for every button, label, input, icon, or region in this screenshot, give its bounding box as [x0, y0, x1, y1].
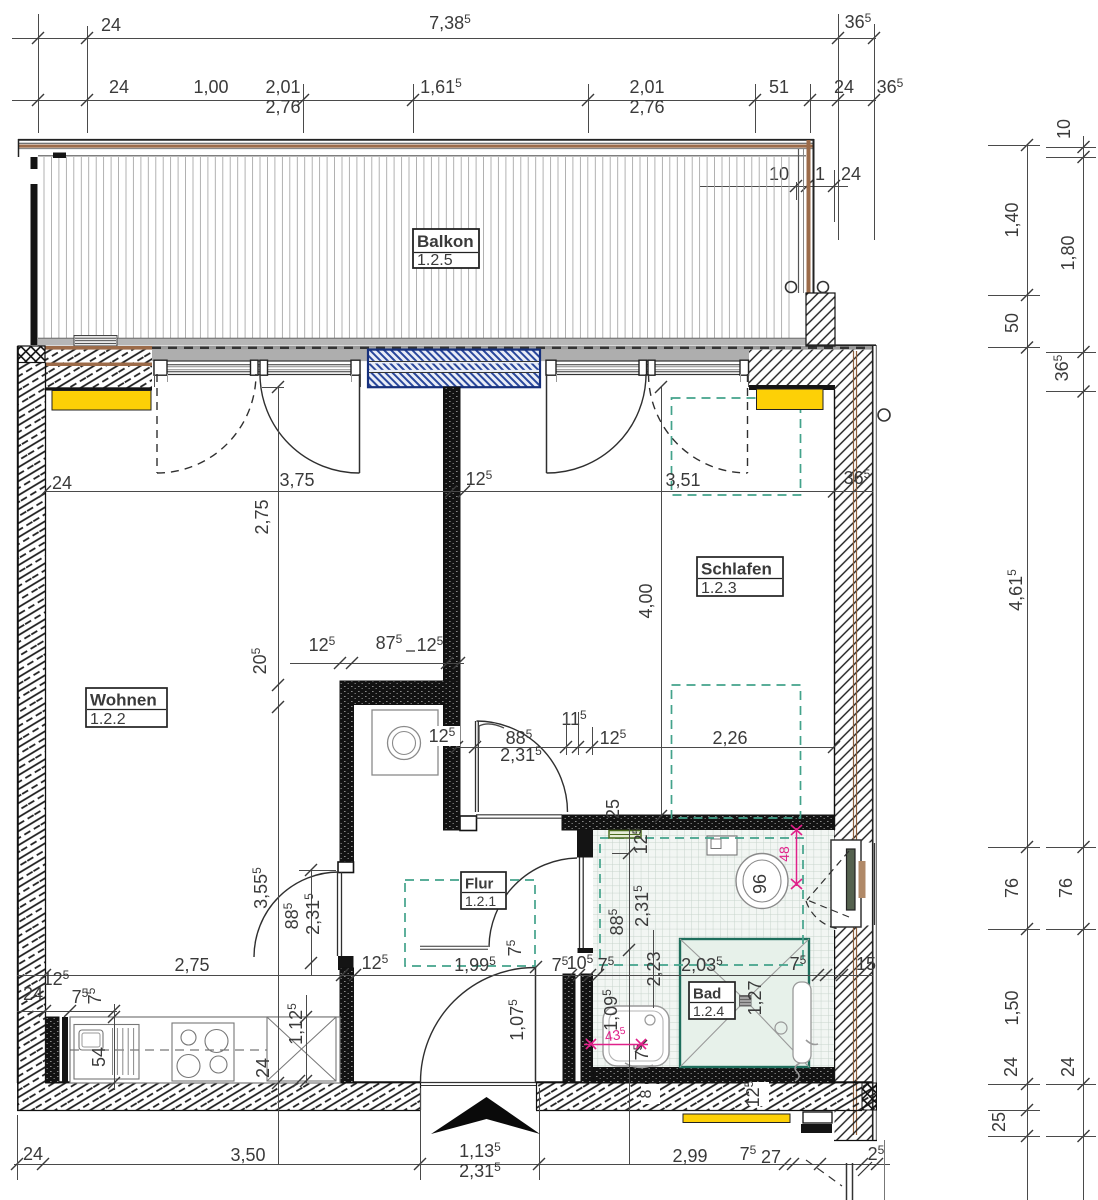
svg-text:1.2.5: 1.2.5 — [417, 252, 453, 269]
svg-text:54: 54 — [89, 1047, 109, 1067]
svg-text:96: 96 — [750, 874, 770, 894]
svg-text:24: 24 — [841, 164, 861, 184]
svg-text:Wohnen: Wohnen — [90, 691, 157, 710]
svg-text:24: 24 — [23, 984, 43, 1004]
svg-text:1,50: 1,50 — [1002, 990, 1022, 1025]
svg-text:8: 8 — [638, 1089, 655, 1098]
svg-text:1.2.2: 1.2.2 — [90, 711, 126, 728]
svg-text:2,75: 2,75 — [174, 955, 209, 975]
svg-text:24: 24 — [101, 15, 121, 35]
svg-text:2,76: 2,76 — [265, 97, 300, 117]
svg-text:2,01: 2,01 — [265, 77, 300, 97]
svg-text:3,50: 3,50 — [230, 1145, 265, 1165]
svg-text:Balkon: Balkon — [417, 232, 474, 251]
svg-text:24: 24 — [253, 1058, 273, 1078]
svg-text:25: 25 — [603, 799, 623, 819]
svg-text:2,75: 2,75 — [252, 499, 272, 534]
svg-text:24: 24 — [834, 77, 854, 97]
svg-text:50: 50 — [1002, 313, 1022, 333]
svg-text:76: 76 — [1002, 878, 1022, 898]
svg-text:1,40: 1,40 — [1002, 202, 1022, 237]
svg-text:2,26: 2,26 — [712, 728, 747, 748]
svg-text:15: 15 — [856, 954, 876, 974]
svg-text:48: 48 — [776, 846, 792, 862]
svg-text:Bad: Bad — [693, 986, 721, 1003]
svg-text:Schlafen: Schlafen — [701, 560, 772, 579]
svg-text:10: 10 — [1054, 119, 1074, 139]
svg-text:24: 24 — [1058, 1057, 1078, 1077]
svg-text:1: 1 — [815, 164, 825, 184]
svg-text:1.2.4: 1.2.4 — [693, 1003, 724, 1019]
svg-text:Flur: Flur — [465, 876, 493, 893]
svg-text:24: 24 — [1001, 1057, 1021, 1077]
svg-text:2,01: 2,01 — [629, 77, 664, 97]
svg-text:51: 51 — [769, 77, 789, 97]
svg-text:1.2.3: 1.2.3 — [701, 580, 737, 597]
svg-text:10: 10 — [769, 164, 789, 184]
svg-text:25: 25 — [989, 1112, 1009, 1132]
svg-text:1,00: 1,00 — [193, 77, 228, 97]
svg-text:1,80: 1,80 — [1058, 235, 1078, 270]
svg-text:4,00: 4,00 — [636, 583, 656, 618]
svg-text:3,51: 3,51 — [665, 470, 700, 490]
svg-text:27: 27 — [761, 1147, 781, 1167]
svg-text:24: 24 — [109, 77, 129, 97]
svg-text:76: 76 — [1056, 878, 1076, 898]
svg-text:1,27: 1,27 — [745, 980, 765, 1015]
svg-text:24: 24 — [52, 473, 72, 493]
svg-text:24: 24 — [23, 1144, 43, 1164]
svg-text:2,99: 2,99 — [672, 1146, 707, 1166]
svg-text:1.2.1: 1.2.1 — [465, 893, 496, 909]
svg-text:3,75: 3,75 — [279, 470, 314, 490]
svg-text:2,76: 2,76 — [629, 97, 664, 117]
